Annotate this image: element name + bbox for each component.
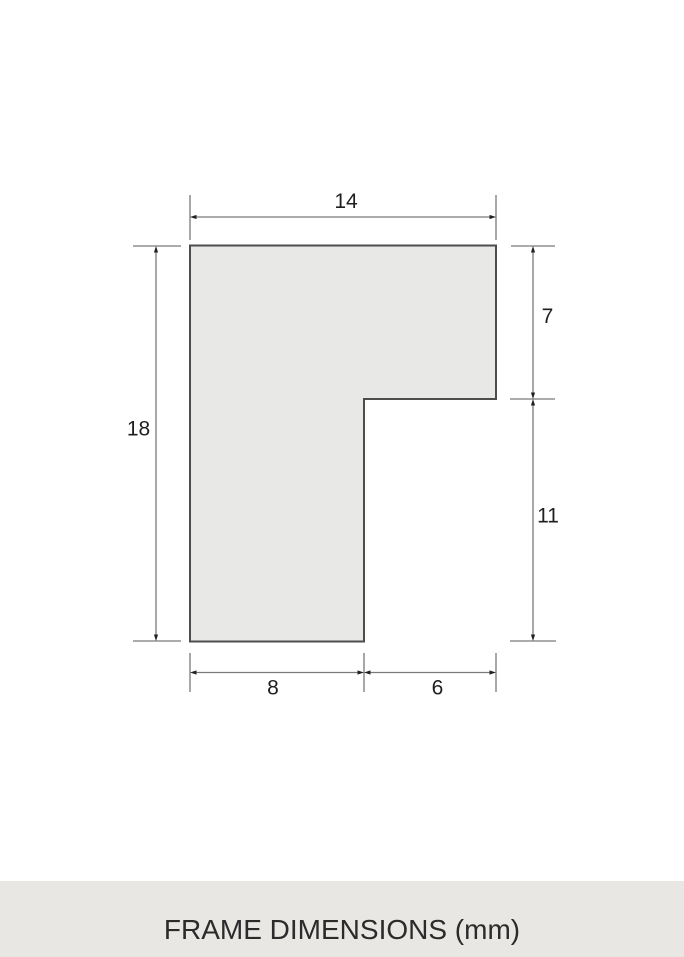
svg-text:7: 7 <box>542 305 554 328</box>
svg-text:14: 14 <box>334 190 358 213</box>
svg-text:11: 11 <box>537 505 559 528</box>
svg-text:18: 18 <box>127 418 150 441</box>
svg-text:6: 6 <box>432 677 444 700</box>
svg-text:8: 8 <box>267 677 279 700</box>
